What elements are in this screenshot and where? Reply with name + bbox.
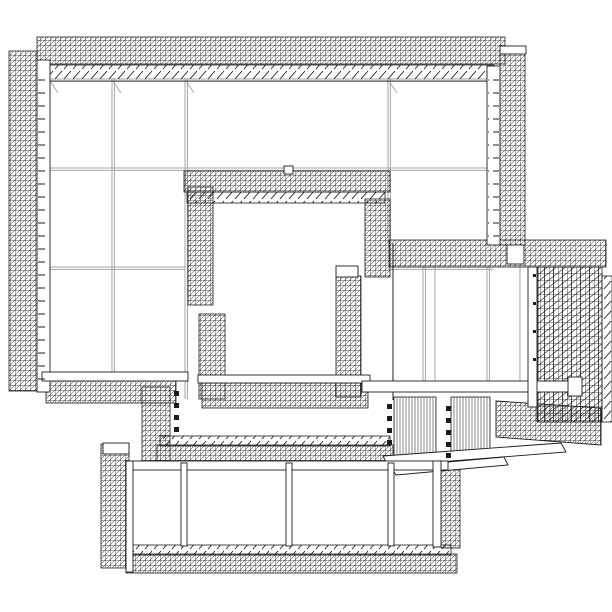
wireframe-stage <box>0 0 612 612</box>
courtyard-bottom-band <box>202 383 368 408</box>
bottombldg-right-edge <box>433 461 441 547</box>
bottombldg-bottom-band <box>126 554 457 573</box>
right-edge-scaffold-band <box>500 52 525 245</box>
top-eave-tick-band <box>42 65 494 81</box>
dot-col-right <box>446 453 451 458</box>
dot-col-left <box>174 391 179 396</box>
dot-col-right <box>446 406 451 411</box>
top-scaffold-band <box>37 37 505 64</box>
bottombldg-column-2 <box>286 463 292 546</box>
left-scaffold-band <box>9 51 37 391</box>
bottombldg-bottom-tick-band <box>129 545 451 555</box>
dot-col-left <box>174 403 179 408</box>
right-band-top-cap <box>500 46 526 54</box>
beam-rivet <box>533 274 536 277</box>
right-structure-bottom-band <box>496 401 601 445</box>
dot-col-right <box>446 418 451 423</box>
courtyard-top-inner-ticks <box>187 192 385 203</box>
top-band-gap-beam <box>507 245 524 264</box>
bottombldg-column-1 <box>181 463 187 546</box>
courtyard-top-square <box>284 166 293 174</box>
right-wall-beam <box>528 267 537 407</box>
right-structure-tall-lattice <box>538 267 602 422</box>
bottombldg-left-edge <box>126 461 133 572</box>
left-wall-floor-ticks <box>38 72 49 382</box>
right-structure-edge-braces <box>602 276 612 422</box>
dot-col-mid <box>387 416 392 421</box>
scene-root <box>9 37 612 573</box>
courtyard-left-upper-band <box>188 187 213 305</box>
corner-tick-1 <box>50 81 58 93</box>
leftwing-bottom-beam <box>42 372 188 381</box>
dot-col-right <box>446 442 451 447</box>
bottombldg-left-tower <box>101 444 129 568</box>
courtyard-right-upper-band <box>365 199 390 277</box>
dot-col-mid <box>387 428 392 433</box>
left-tower-cap <box>103 443 129 454</box>
beam-rivet <box>533 302 536 305</box>
louver-block-a <box>394 397 436 458</box>
dot-col-left <box>174 427 179 432</box>
bottombldg-top-tick-band <box>160 436 390 446</box>
courtyard-bottom-beam <box>198 375 370 383</box>
dot-col-left <box>174 415 179 420</box>
bottombldg-column-3 <box>388 463 394 546</box>
dot-col-mid <box>387 440 392 445</box>
dot-col-right <box>446 430 451 435</box>
bottombldg-top-band <box>157 445 393 463</box>
bottombldg-right-band <box>441 464 460 548</box>
beam-rivet <box>533 330 536 333</box>
wireframe-canvas <box>0 0 612 612</box>
beam-rivet <box>533 358 536 361</box>
courtyard-band-cap <box>336 266 358 277</box>
girder-end-cap <box>568 377 582 396</box>
dot-col-mid <box>387 404 392 409</box>
main-girder <box>362 381 578 392</box>
right-wall-floor-ticks <box>488 74 499 239</box>
